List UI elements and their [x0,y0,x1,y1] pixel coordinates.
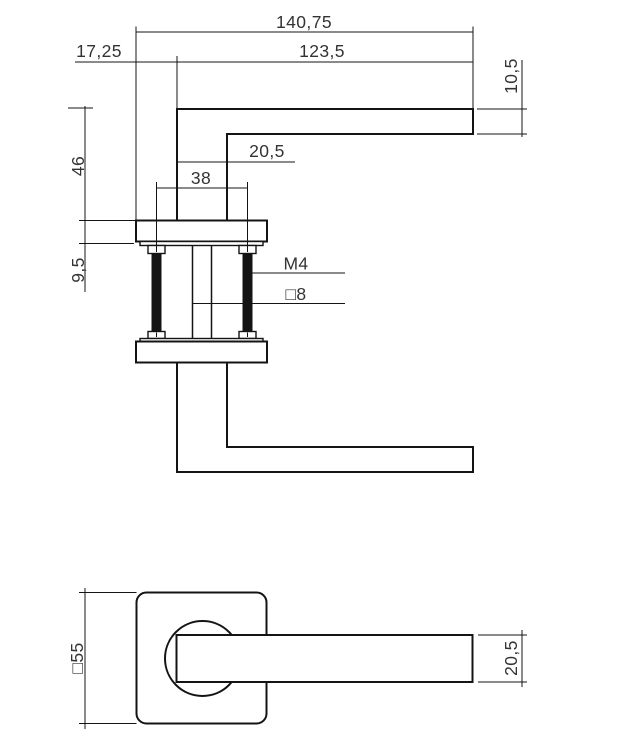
dim-label-grip-length: 123,5 [299,41,345,61]
upper-lever-outline [177,109,473,221]
label-screw-thread: M4 [283,254,308,274]
bottom-rosette-plate [136,342,267,363]
label-spindle-size: □8 [285,284,306,304]
bolt-left-rod [152,254,162,332]
dim-label-grip-thickness-top: 10,5 [501,58,521,94]
dim-label-total-length: 140,75 [276,12,332,32]
dimension-rosette-size: □55 [67,588,137,729]
dimension-grip-thickness-front: 20,5 [478,630,527,687]
door-handle-technical-drawing: 140,75 17,25 123,5 10,5 46 9,5 20,5 38 [0,0,626,744]
lower-lever-outline [177,363,473,473]
dim-label-neck-width: 20,5 [249,141,285,161]
dimension-neck-width: 20,5 [177,141,295,168]
bolt-right-rod [243,254,253,332]
technical-drawing-page: 140,75 17,25 123,5 10,5 46 9,5 20,5 38 [0,0,626,744]
dim-label-grip-thickness-front: 20,5 [501,640,521,676]
top-view: 140,75 17,25 123,5 10,5 46 9,5 20,5 38 [68,12,527,472]
dimension-grip-thickness-top: 10,5 [477,58,527,137]
dim-label-rosette-size: □55 [67,642,87,673]
leader-spindle-size: □8 [193,284,346,304]
dim-label-offset: 17,25 [76,41,122,61]
leader-screw-thread: M4 [253,254,346,274]
dim-label-rosette-thickness: 9,5 [68,257,88,283]
spindle-lines [193,246,212,339]
dimension-height-and-rosette-thickness: 46 9,5 [68,106,136,292]
front-grip-bar [177,635,473,682]
dimension-offset-and-grip-length: 17,25 123,5 [75,41,473,109]
bolt-slot-marks [157,333,248,338]
front-view: □55 20,5 [67,588,527,729]
dim-label-handle-height: 46 [68,156,88,176]
dim-label-screw-spacing: 38 [191,168,211,188]
